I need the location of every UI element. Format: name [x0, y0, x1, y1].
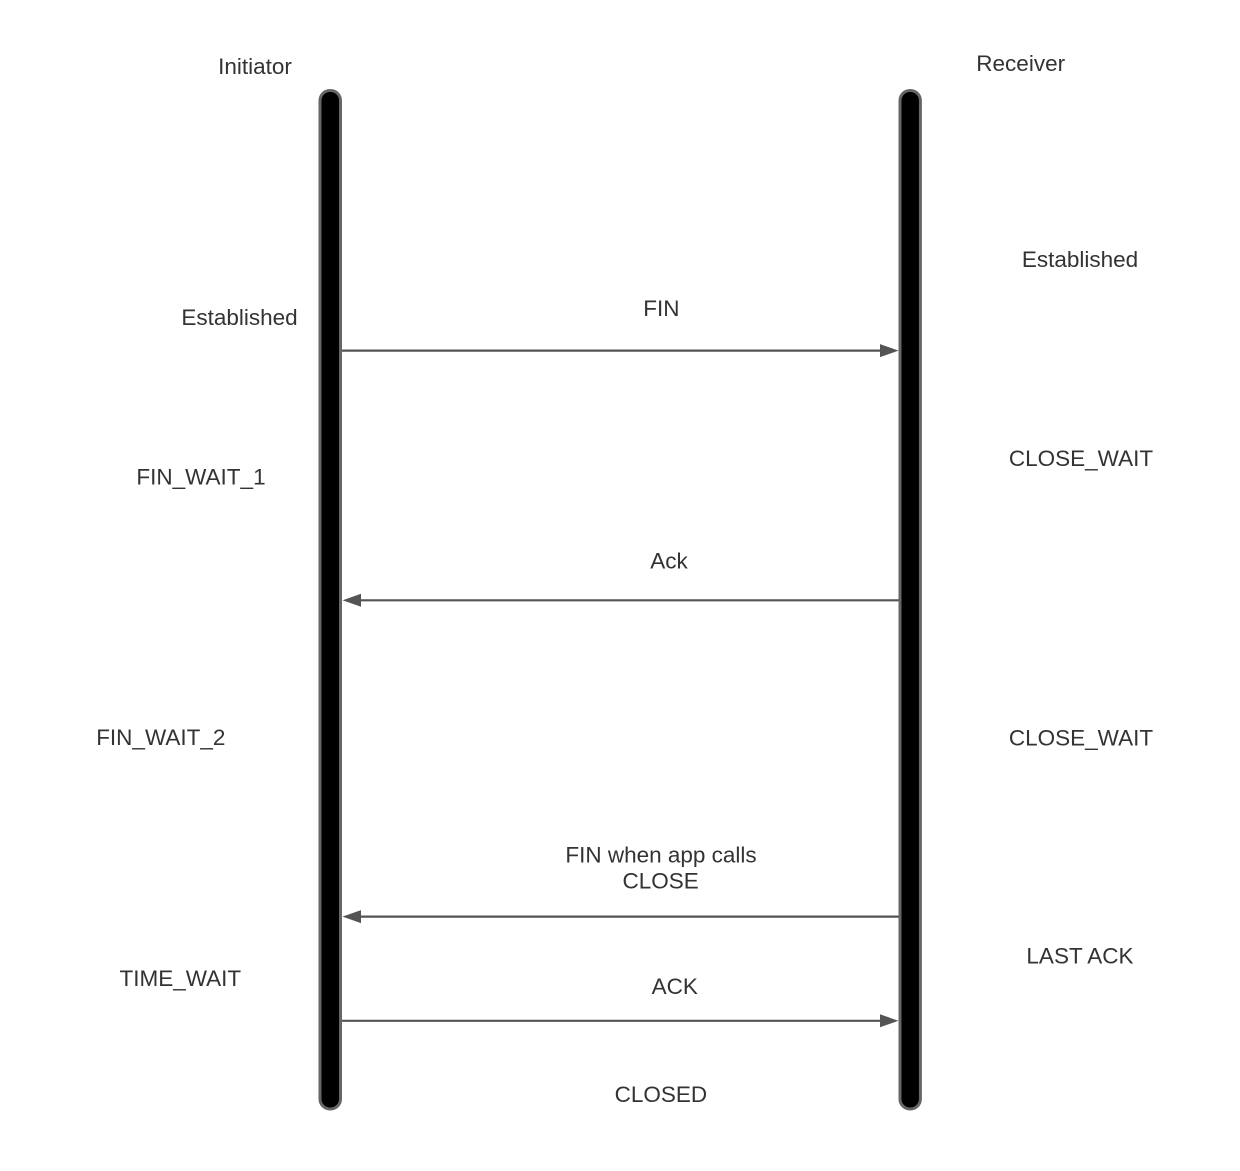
svg-text:FIN: FIN: [643, 296, 679, 321]
svg-text:Established: Established: [1022, 247, 1138, 272]
svg-text:FIN_WAIT_2: FIN_WAIT_2: [96, 725, 225, 750]
svg-text:FIN when app calls: FIN when app calls: [565, 843, 756, 868]
svg-text:Established: Established: [181, 305, 297, 330]
svg-text:Receiver: Receiver: [976, 51, 1065, 76]
svg-text:Ack: Ack: [650, 549, 688, 574]
svg-text:CLOSE_WAIT: CLOSE_WAIT: [1009, 446, 1153, 471]
svg-text:Initiator: Initiator: [218, 54, 292, 79]
svg-text:CLOSE: CLOSE: [622, 868, 698, 893]
svg-text:CLOSE_WAIT: CLOSE_WAIT: [1009, 726, 1153, 751]
svg-text:ACK: ACK: [652, 974, 698, 999]
svg-text:FIN_WAIT_1: FIN_WAIT_1: [136, 465, 265, 490]
svg-text:TIME_WAIT: TIME_WAIT: [119, 966, 241, 991]
svg-text:CLOSED: CLOSED: [615, 1082, 708, 1107]
svg-text:LAST ACK: LAST ACK: [1026, 943, 1133, 968]
